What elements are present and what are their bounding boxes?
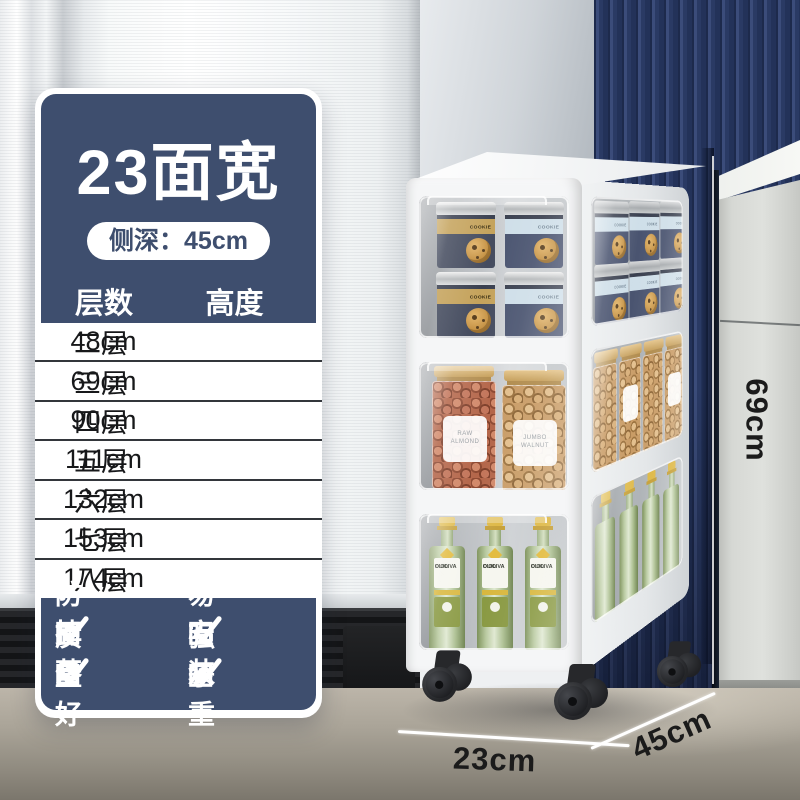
side-opening-1: COOKIE MIX COOKIE MIX COOKIE MIX COOKIE … xyxy=(591,196,682,326)
table-row: 四层90cm xyxy=(35,402,322,441)
caster-wheel-front-left xyxy=(420,650,473,703)
col-header-layers: 层数 xyxy=(41,280,167,322)
height-dimension-label: 69cm xyxy=(739,378,775,461)
caster-wheel-front-right xyxy=(552,664,610,722)
table-header: 层数 高度 xyxy=(41,270,316,323)
table-row: 七层153cm xyxy=(35,520,322,559)
feature-item: 质量好 xyxy=(55,656,87,690)
product-title: 23面宽 xyxy=(41,122,316,213)
feature-item: 强承重 xyxy=(188,656,220,690)
caster-wheel-back-right xyxy=(655,641,703,689)
cart-front-face: COOKIE MIX COOKIE MIX COOKIE MIX COOKIE … xyxy=(406,178,582,672)
table-row: 六层132cm xyxy=(35,481,322,520)
cart-side-face: COOKIE MIX COOKIE MIX COOKIE MIX COOKIE … xyxy=(581,180,689,674)
depth-badge: 侧深：45cm xyxy=(87,222,270,260)
table-row: 三层69cm xyxy=(35,362,322,401)
drawer-2: RAWALMOND JUMBOWALNUT xyxy=(419,362,569,490)
side-opening-2 xyxy=(591,331,682,474)
col-header-height: 高度 xyxy=(167,280,316,322)
table-row: 二层48cm xyxy=(35,323,322,362)
feature-badges: 防掉落 易安装 质量好 强承重 xyxy=(41,598,316,710)
spec-card-header: 23面宽 侧深：45cm 层数 高度 xyxy=(41,94,316,323)
product-image: COOKIE MIX COOKIE MIX COOKIE MIX COOKIE … xyxy=(0,0,800,800)
spec-table: 二层48cm 三层69cm 四层90cm 五层111cm 六层132cm 七层1… xyxy=(35,323,322,597)
side-opening-3 xyxy=(591,455,682,625)
spec-card: 23面宽 侧深：45cm 层数 高度 二层48cm 三层69cm 四层90cm … xyxy=(35,88,322,718)
drawer-3: OLIOD'OLIVA OLIOD'OLIVA OLIOD'OLIVA xyxy=(419,514,569,650)
drawer-1: COOKIE MIX COOKIE MIX COOKIE MIX COOKIE … xyxy=(419,196,569,338)
width-dimension-label: 23cm xyxy=(452,741,537,780)
table-row: 五层111cm xyxy=(35,441,322,480)
